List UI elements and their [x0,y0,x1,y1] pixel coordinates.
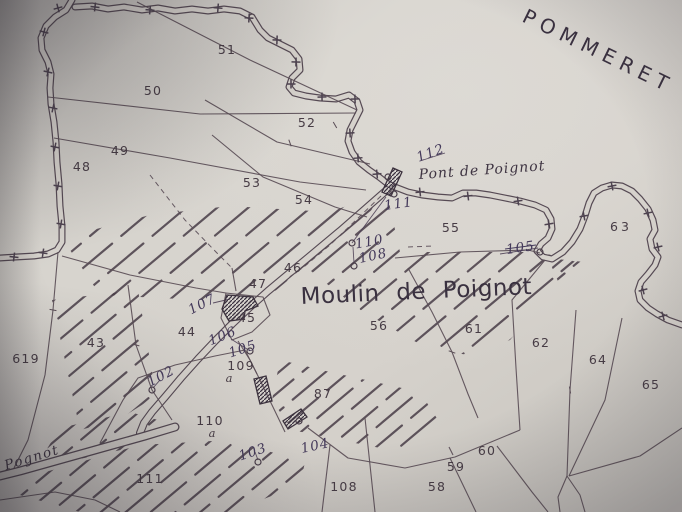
photo-shadow-left-edge [0,0,682,512]
cadastral-map-photo: POMMERET Moulin de Poignot Pont de Poign… [0,0,682,512]
map-photo-stage: POMMERET Moulin de Poignot Pont de Poign… [0,0,682,512]
